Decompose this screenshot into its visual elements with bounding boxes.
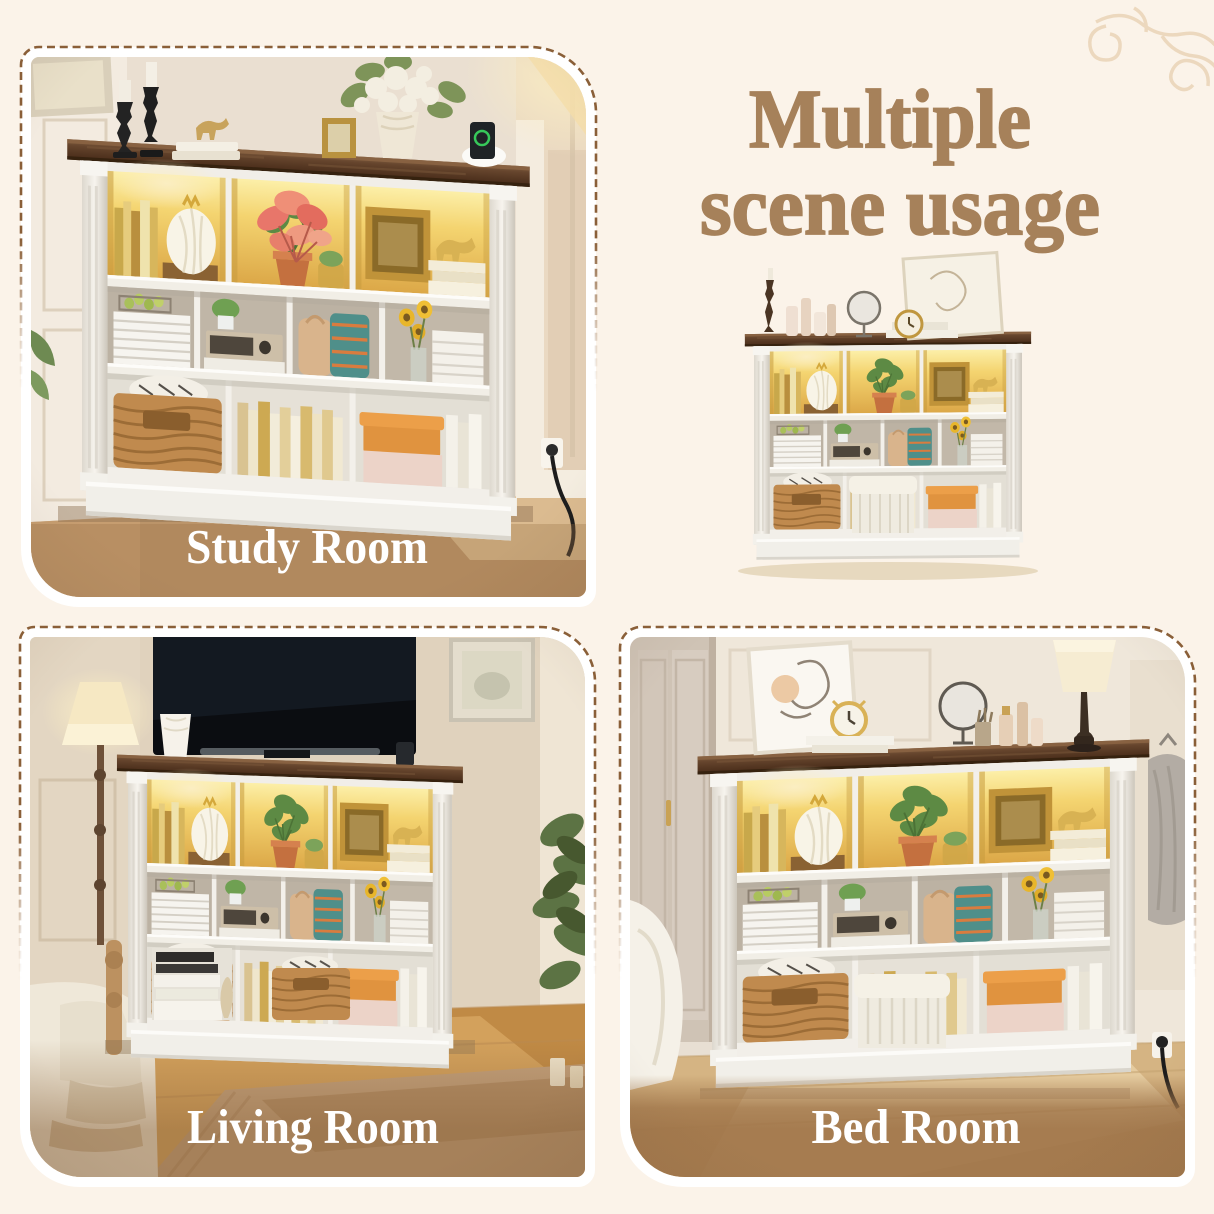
- svg-text:Bed Room: Bed Room: [812, 1099, 1021, 1154]
- svg-text:Multiple: Multiple: [749, 73, 1031, 166]
- svg-text:Study Room: Study Room: [186, 519, 428, 574]
- svg-text:scene usage: scene usage: [700, 160, 1100, 253]
- svg-text:Living Room: Living Room: [187, 1099, 439, 1154]
